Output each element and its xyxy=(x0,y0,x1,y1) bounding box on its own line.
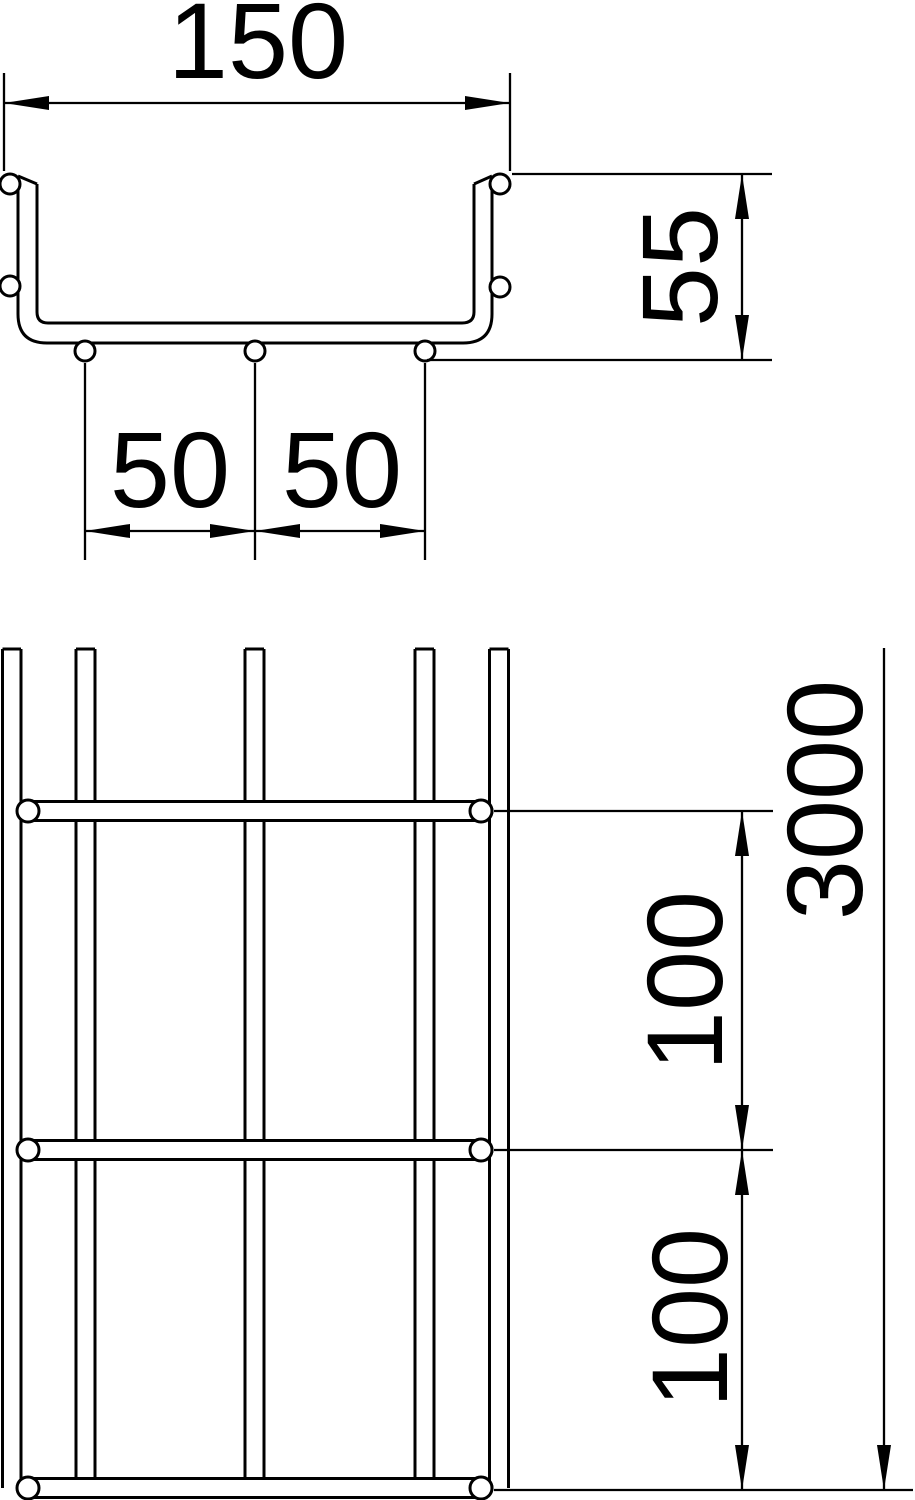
rung-end-right xyxy=(470,800,492,822)
arrowhead-pitch1-top xyxy=(735,811,749,856)
dimension-wire-spacing: 50 50 xyxy=(85,363,425,560)
transverse-wire-2 xyxy=(17,1139,492,1161)
u-profile-outer-line xyxy=(18,176,492,343)
plan-view: 100 100 3000 xyxy=(3,648,914,1499)
side-wire-left-bottom xyxy=(0,276,20,296)
transverse-wires xyxy=(17,800,492,1499)
rung-end-left xyxy=(17,800,39,822)
bottom-wire-middle xyxy=(245,341,265,361)
bottom-wire-right xyxy=(415,341,435,361)
dimension-label-height: 55 xyxy=(619,207,740,327)
rung-body xyxy=(18,802,493,821)
rung-end-right xyxy=(470,1477,492,1499)
arrowhead-bottom xyxy=(877,1445,891,1490)
longitudinal-wire-2 xyxy=(76,649,95,1488)
mesh-tray-dimension-drawing: 150 55 50 50 xyxy=(0,0,915,1500)
rung-end-right xyxy=(470,1139,492,1161)
rung-end-left xyxy=(17,1477,39,1499)
rung-end-left xyxy=(17,1139,39,1161)
transverse-wire-3 xyxy=(17,1477,492,1499)
drawing-canvas: 150 55 50 50 xyxy=(0,0,915,1500)
arrowhead-pitch2-top xyxy=(735,1150,749,1195)
longitudinal-wire-1 xyxy=(3,649,22,1488)
longitudinal-wire-3 xyxy=(245,649,264,1488)
dimension-label-pitch-lower: 100 xyxy=(629,1228,750,1408)
side-wire-left-top xyxy=(0,174,20,194)
arrowhead-right xyxy=(465,96,510,110)
arrowhead-pitch2-bottom xyxy=(735,1445,749,1490)
longitudinal-wire-4 xyxy=(415,649,434,1488)
dimension-label-spacing-right: 50 xyxy=(282,409,402,530)
dimension-label-length: 3000 xyxy=(764,680,885,920)
dimension-width: 150 xyxy=(4,0,510,171)
arrowhead-left xyxy=(4,96,49,110)
rung-body xyxy=(18,1141,493,1160)
dimension-height: 55 xyxy=(427,174,772,360)
bottom-wire-left xyxy=(75,341,95,361)
side-wire-right-top xyxy=(490,174,510,194)
longitudinal-wires xyxy=(3,649,509,1488)
dimension-label-pitch-upper: 100 xyxy=(624,891,745,1071)
dimension-label-width: 150 xyxy=(168,0,348,101)
transverse-wire-1 xyxy=(17,800,492,822)
cross-section-view: 150 55 50 50 xyxy=(0,0,772,560)
longitudinal-wire-5 xyxy=(490,649,509,1488)
tray-u-profile xyxy=(18,176,492,343)
longitudinal-wire-sections xyxy=(0,174,510,361)
side-wire-right-bottom xyxy=(490,277,510,297)
u-profile-inner-line xyxy=(37,184,474,323)
dimension-label-spacing-left: 50 xyxy=(110,409,230,530)
rung-body xyxy=(18,1479,493,1498)
dimension-length: 3000 xyxy=(764,648,891,1490)
arrowhead-pitch1-bottom xyxy=(735,1105,749,1150)
